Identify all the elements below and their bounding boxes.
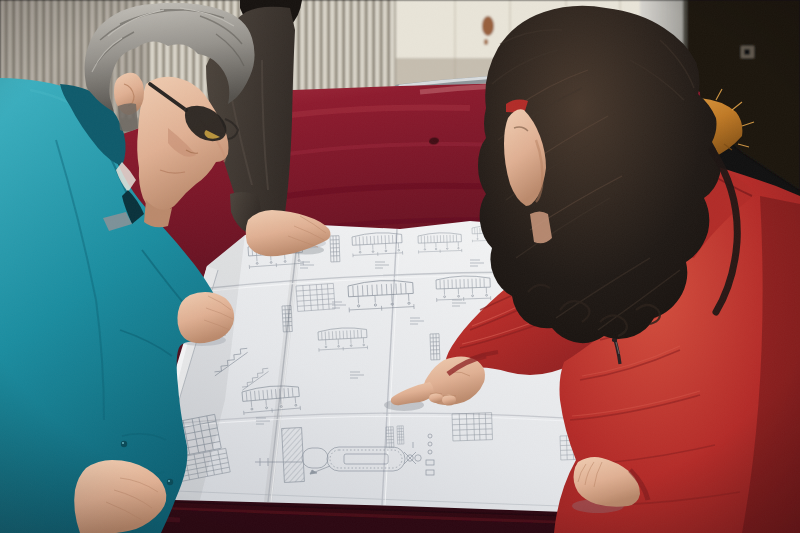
photo-scene — [0, 0, 800, 533]
vignette — [0, 0, 800, 533]
scene-canvas — [0, 0, 800, 533]
